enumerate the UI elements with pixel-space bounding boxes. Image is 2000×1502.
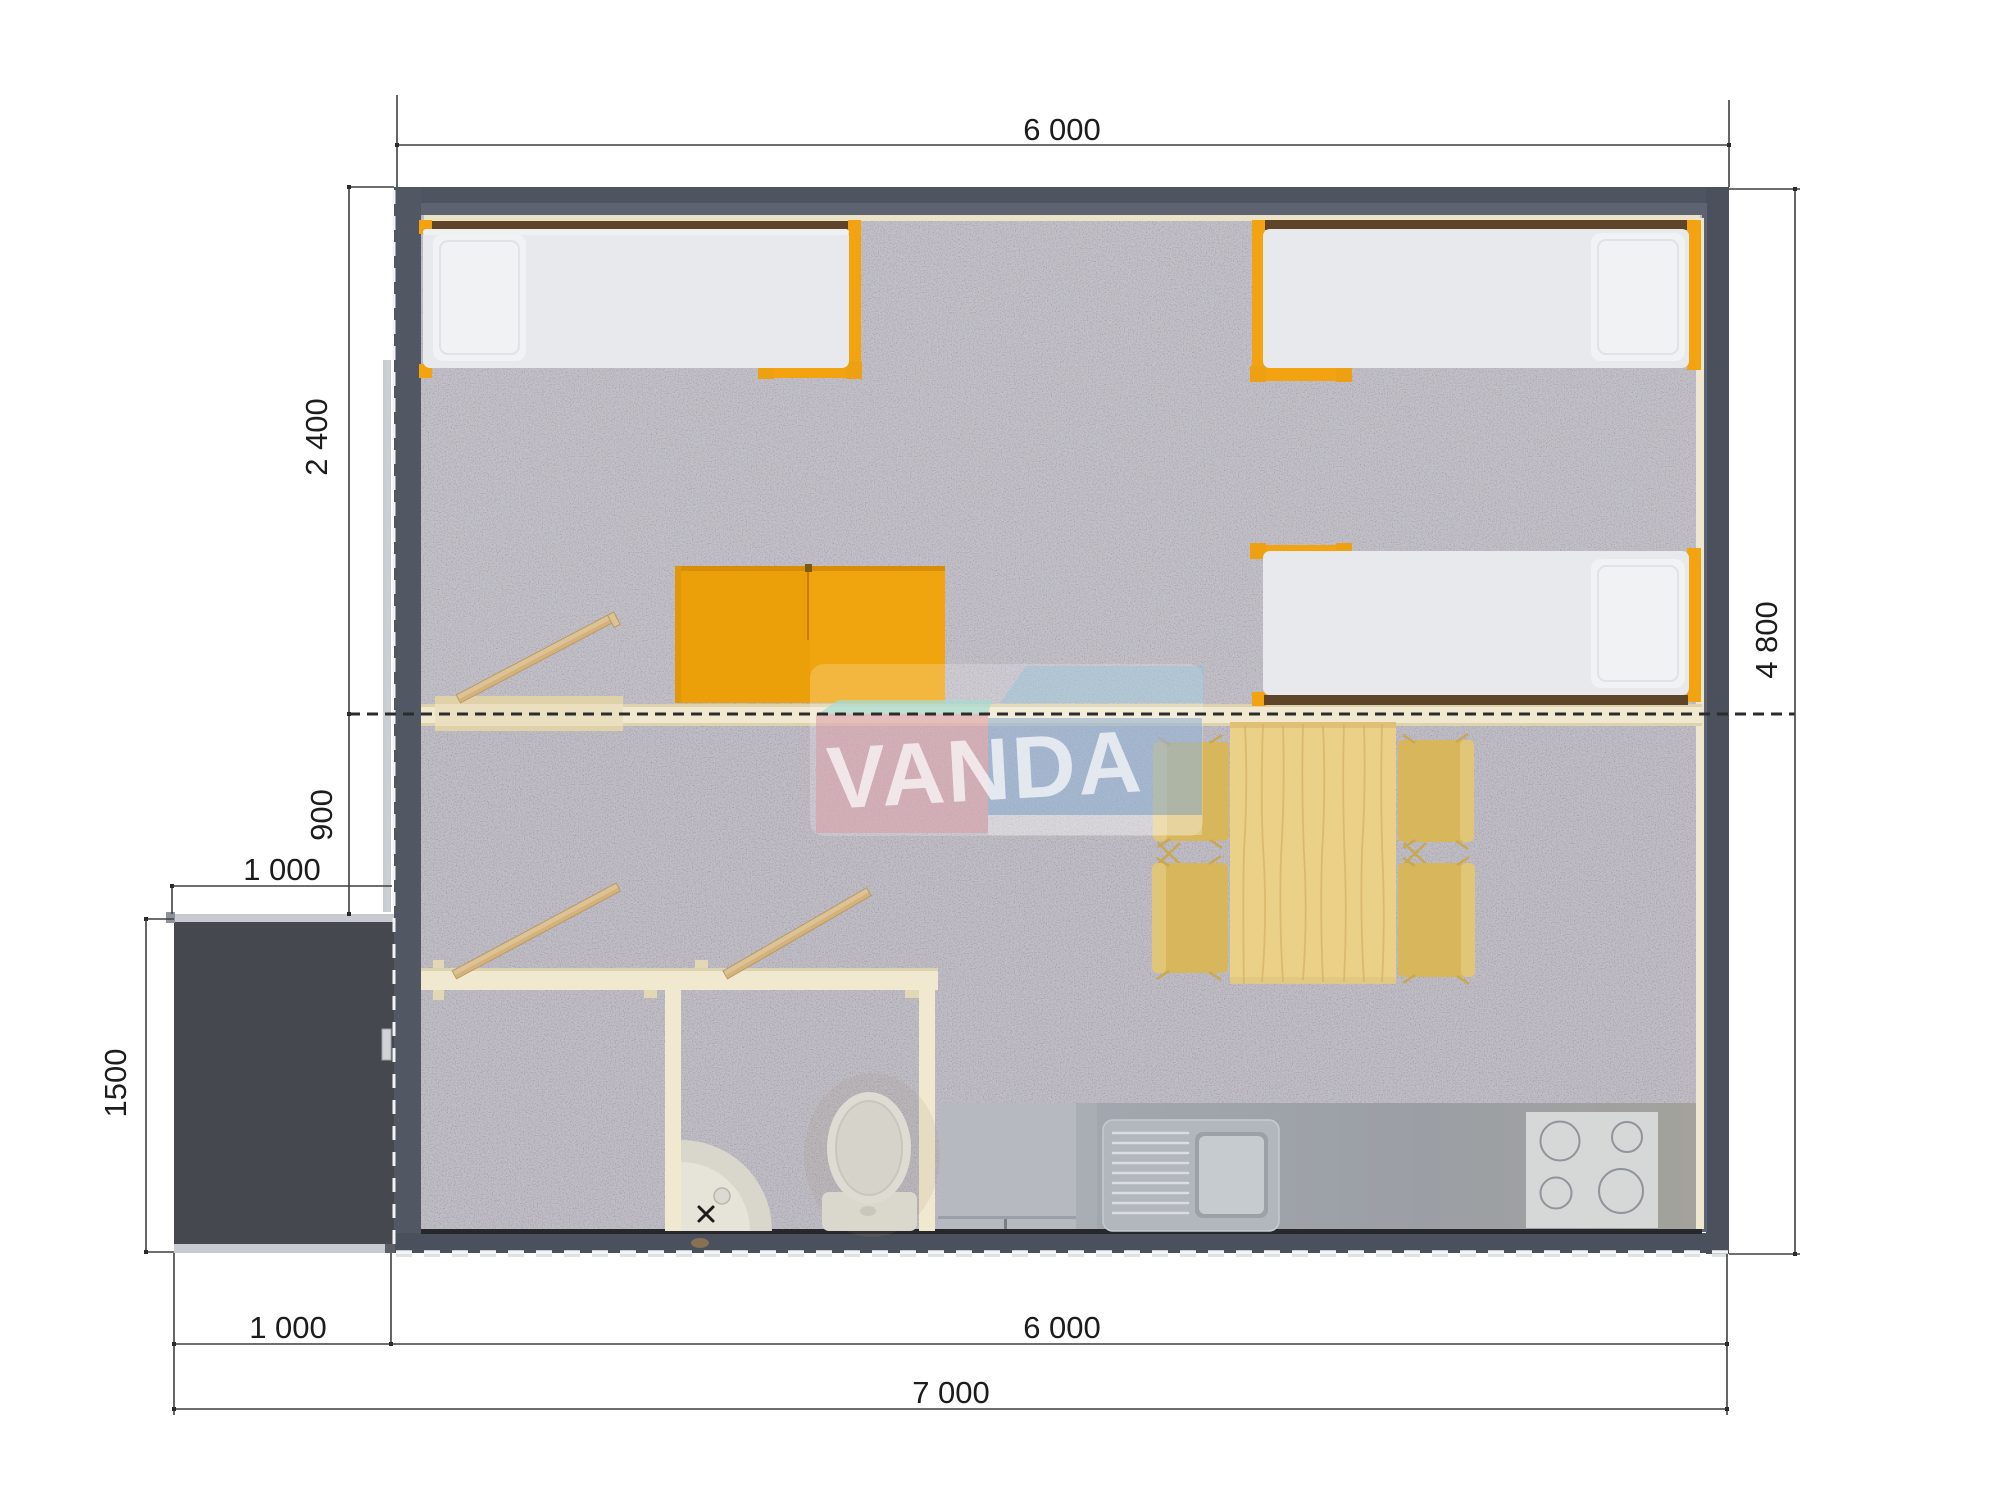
svg-text:900: 900 <box>304 789 339 841</box>
svg-text:2 400: 2 400 <box>299 398 334 476</box>
svg-text:6 000: 6 000 <box>1023 112 1101 147</box>
svg-text:1 000: 1 000 <box>249 1310 327 1345</box>
svg-text:7 000: 7 000 <box>912 1375 990 1410</box>
svg-text:4 800: 4 800 <box>1749 601 1784 679</box>
svg-text:VANDA: VANDA <box>824 711 1145 828</box>
svg-text:1 000: 1 000 <box>243 852 321 887</box>
svg-text:1500: 1500 <box>98 1049 133 1118</box>
svg-text:6 000: 6 000 <box>1023 1310 1101 1345</box>
